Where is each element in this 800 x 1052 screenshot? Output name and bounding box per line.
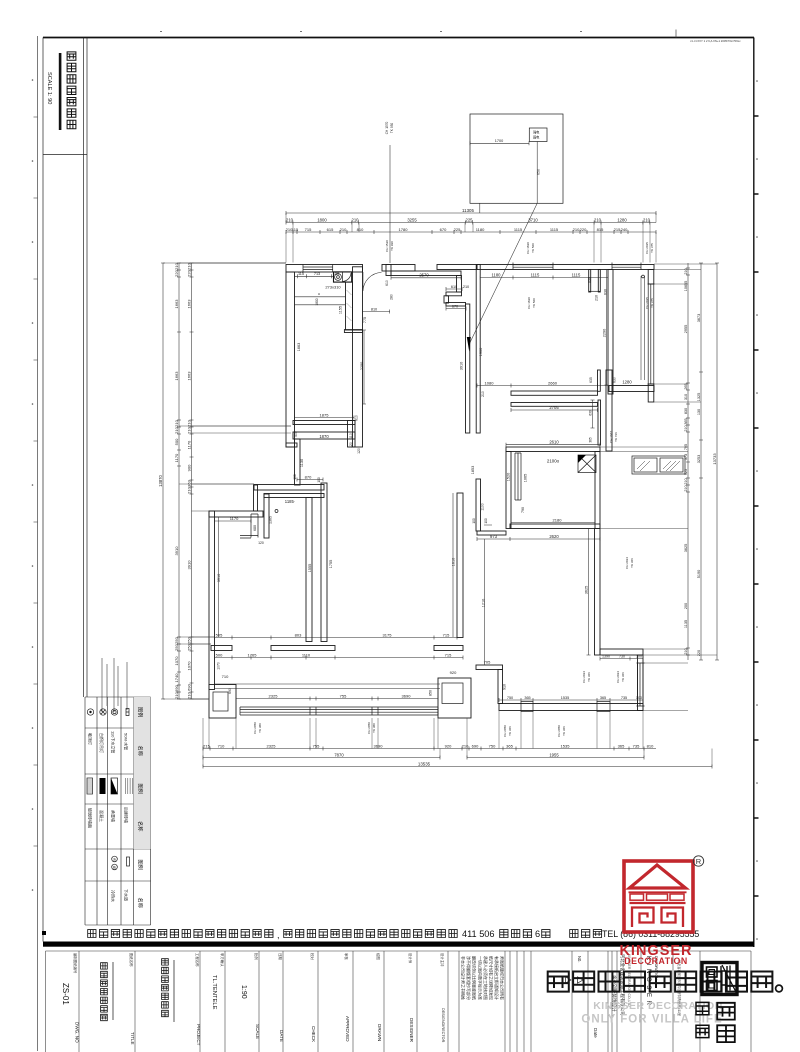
svg-text:下水道: 下水道 [124,889,130,901]
svg-text:TK 366: TK 366 [621,672,625,682]
svg-text:1080: 1080 [485,380,495,385]
svg-text:TK 366: TK 366 [587,672,591,682]
svg-text:有承接纸启立即通知设计: 有承接纸启立即通知设计 [494,956,500,1000]
svg-text:210: 210 [186,691,191,698]
svg-text:CH 2050: CH 2050 [253,722,257,734]
svg-text:365: 365 [618,743,625,748]
svg-text:图纸名称: 图纸名称 [129,953,134,967]
svg-text:CH 1820: CH 1820 [527,297,531,309]
svg-text:3910: 3910 [217,574,221,582]
svg-text:210: 210 [286,217,294,222]
svg-text:1100: 1100 [481,503,485,510]
svg-text:210: 210 [174,262,179,269]
svg-text:弱电: 弱电 [533,135,540,140]
svg-text:APPROVED: APPROVED [345,1016,350,1042]
svg-text:翻改切勿以比例量度图纸: 翻改切勿以比例量度图纸 [472,956,478,1000]
svg-text:TK 930: TK 930 [390,241,394,251]
svg-text:3253: 3253 [697,455,701,463]
svg-text:TK 375: TK 375 [650,298,654,308]
svg-text:ZS-01: ZS-01 [61,983,70,1005]
svg-text:1:90: 1:90 [240,985,247,999]
svg-text:735: 735 [621,696,627,700]
svg-text:1663: 1663 [297,343,301,351]
svg-text:850: 850 [429,690,433,696]
svg-text:DRAWN: DRAWN [377,1024,382,1041]
svg-text:1875: 1875 [320,412,330,417]
svg-text:图例: 图例 [137,860,145,870]
svg-text:图例: 图例 [137,707,145,717]
svg-text:1853: 1853 [471,466,475,474]
svg-text:TITLE: TITLE [130,1032,135,1045]
svg-text:TK 930: TK 930 [390,123,394,134]
svg-text:500: 500 [174,438,179,445]
svg-text:CH 2025: CH 2025 [645,242,649,254]
svg-text:150: 150 [333,272,339,276]
svg-text:100: 100 [317,477,321,483]
svg-text:CH 1667: CH 1667 [609,431,613,443]
svg-text:1780: 1780 [399,227,409,232]
svg-text:混凝土: 混凝土 [99,810,105,822]
svg-text:803: 803 [295,632,302,637]
svg-text:1130: 1130 [300,459,304,467]
svg-text:设计主持: 设计主持 [440,953,445,967]
svg-text:1325: 1325 [697,393,701,401]
svg-text:690: 690 [174,684,179,691]
svg-text:1520: 1520 [507,473,511,481]
svg-text:N0.: N0. [577,956,582,963]
svg-text:1663: 1663 [174,299,179,309]
svg-text:220: 220 [580,227,587,232]
svg-text:755: 755 [340,693,347,698]
svg-text:1070: 1070 [217,662,221,670]
svg-text:3625: 3625 [684,544,688,552]
svg-text:DATE: DATE [279,1030,284,1042]
svg-text:210: 210 [595,295,599,301]
svg-text:CH 2024: CH 2024 [625,557,629,569]
svg-text:2610: 2610 [549,440,559,445]
svg-text:750: 750 [507,696,513,700]
svg-text:审核: 审核 [344,953,349,960]
svg-text:13535: 13535 [418,761,431,766]
svg-text:13870: 13870 [158,475,163,487]
svg-text:10655: 10655 [684,281,688,292]
svg-text:200: 200 [684,603,688,609]
svg-text:1280: 1280 [617,217,627,222]
svg-text:3673: 3673 [697,314,701,322]
svg-text:610: 610 [385,280,389,286]
svg-text:设计师: 设计师 [408,953,413,964]
svg-text:630: 630 [588,410,592,416]
svg-text:713: 713 [314,272,320,276]
svg-text:310: 310 [684,394,688,400]
svg-text:1663: 1663 [186,299,191,309]
svg-text:210: 210 [643,217,651,222]
svg-text:编制图纸编号: 编制图纸编号 [73,953,78,974]
svg-text:715: 715 [443,632,450,637]
svg-text:1955: 1955 [549,752,559,757]
svg-text:绘图: 绘图 [376,953,381,960]
svg-text:Date: Date [593,1028,598,1038]
svg-text:1180: 1180 [476,227,485,232]
svg-text:师图纸版权归本公司所有: 师图纸版权归本公司所有 [500,956,506,1000]
svg-text:130: 130 [697,409,701,415]
svg-text:2180: 2180 [553,517,563,522]
svg-text:比例: 比例 [254,953,259,960]
svg-text:210: 210 [684,478,688,484]
svg-text:1185·: 1185· [285,499,295,504]
svg-text:校对: 校对 [310,953,315,960]
svg-text:1170: 1170 [174,453,179,462]
svg-text:265: 265 [684,383,688,389]
svg-text:1390: 1390 [602,654,610,658]
svg-text:210: 210 [684,648,688,654]
svg-text:365: 365 [684,418,688,424]
svg-text:非本公司设计师之书稿姓: 非本公司设计师之书稿姓 [461,956,467,1000]
svg-text:363: 363 [186,479,191,486]
svg-text:2570: 2570 [419,273,429,278]
svg-text:R: R [696,857,702,866]
svg-text:120: 120 [349,442,353,448]
svg-text:635: 635 [589,377,593,383]
svg-text:615: 615 [327,227,334,232]
svg-text:100: 100 [484,518,488,524]
svg-text:505: 505 [216,632,223,637]
svg-text:1210: 1210 [482,599,486,607]
svg-text:775: 775 [363,317,367,323]
svg-text:220: 220 [186,269,191,276]
svg-text:810: 810 [371,307,377,311]
svg-text:CHECK: CHECK [311,1026,316,1043]
svg-text:TK 375: TK 375 [650,243,654,253]
svg-text:1535: 1535 [561,696,569,700]
svg-text:3910: 3910 [174,546,179,556]
svg-text:6: 6 [535,929,540,939]
svg-text:110: 110 [349,433,353,439]
svg-text:610: 610 [451,285,457,289]
svg-text:7870: 7870 [334,752,344,757]
svg-text:一切以图内数字标示为准: 一切以图内数字标示为准 [477,956,483,1000]
svg-text:2325: 2325 [269,693,279,698]
svg-text:250: 250 [186,643,191,650]
svg-text:,: , [277,930,280,940]
svg-text:210: 210 [594,217,602,222]
svg-text:810: 810 [647,743,654,748]
svg-text:790: 790 [521,507,525,513]
svg-text:690: 690 [186,683,191,690]
svg-text:CH 2050: CH 2050 [557,725,561,737]
svg-text:630: 630 [604,289,608,295]
svg-text:1115: 1115 [531,272,540,277]
svg-text:630: 630 [613,377,617,383]
svg-text:1755: 1755 [329,560,333,568]
svg-text:215: 215 [203,743,210,748]
svg-text:870: 870 [305,474,312,479]
svg-text:500: 500 [216,652,223,657]
svg-text:670: 670 [452,304,458,308]
svg-text:610: 610 [355,415,359,421]
svg-text:273x310: 273x310 [325,285,341,290]
svg-text:210: 210 [684,485,688,491]
svg-text:TK 366: TK 366 [562,726,566,736]
svg-text:210: 210 [174,419,179,426]
svg-text:365: 365 [506,743,513,748]
svg-text:670: 670 [440,227,447,232]
svg-text:甲方确认: 甲方确认 [220,953,225,967]
svg-text:DWG. NO: DWG. NO [75,1022,80,1043]
svg-text:630: 630 [588,277,592,283]
svg-text:1365: 1365 [269,516,273,524]
svg-text:1535: 1535 [561,743,571,748]
svg-text:100: 100 [636,696,642,700]
svg-text:250: 250 [186,636,191,643]
svg-text:后建砖墙: 后建砖墙 [124,807,130,823]
svg-text:TK 366: TK 366 [630,558,634,568]
svg-text:冷热水: 冷热水 [111,890,117,902]
svg-text:120: 120 [258,541,264,545]
svg-text:210: 210 [481,391,485,397]
svg-text:50M·水管: 50M·水管 [124,733,130,750]
svg-text:2660: 2660 [548,380,558,385]
svg-text:2325: 2325 [267,743,277,748]
svg-text:1900: 1900 [479,348,483,356]
svg-text:110下水立管: 110下水立管 [111,731,117,753]
svg-text:240: 240 [621,227,628,232]
svg-text:白炽灯吊灯: 白炽灯吊灯 [99,733,105,753]
svg-text:3625: 3625 [584,586,588,594]
svg-text:1170: 1170 [186,440,191,449]
svg-text:210: 210 [186,426,191,433]
svg-text:920: 920 [445,743,452,748]
svg-text:365: 365 [589,437,593,443]
svg-text:2705: 2705 [549,405,559,410]
svg-text:PROJECT: PROJECT [196,1024,201,1046]
svg-text:210: 210 [684,425,688,431]
svg-text:1115: 1115 [514,227,523,232]
svg-text:690: 690 [228,688,232,694]
svg-text:1870: 1870 [319,434,329,439]
svg-text:100: 100 [472,518,476,524]
svg-text:750: 750 [489,743,496,748]
svg-text:755: 755 [313,743,320,748]
svg-text:411 506: 411 506 [462,929,495,939]
svg-text:涉不得翻版套相抄写部分: 涉不得翻版套相抄写部分 [466,956,472,1000]
svg-text:1800: 1800 [317,217,327,222]
svg-text:玻璃砖墙面: 玻璃砖墙面 [88,808,94,828]
svg-text:TK 560: TK 560 [531,243,535,253]
svg-text:TK 380: TK 380 [258,723,262,733]
svg-text:3690: 3690 [402,693,412,698]
svg-text:3175: 3175 [383,632,393,637]
svg-text:1663: 1663 [174,371,179,381]
svg-text:900: 900 [186,464,191,471]
svg-text:1740: 1740 [174,673,179,683]
svg-text:图例: 图例 [137,784,145,794]
svg-text:1555: 1555 [308,564,312,572]
svg-text:1115: 1115 [550,227,559,232]
svg-text:830: 830 [684,408,688,414]
svg-text:100: 100 [293,474,297,480]
svg-text:强电: 强电 [533,130,540,135]
svg-text:910: 910 [503,684,507,690]
svg-text:1070: 1070 [186,661,191,671]
svg-text:210: 210 [186,419,191,426]
svg-text:5190: 5190 [697,570,701,578]
svg-text:CH 1820: CH 1820 [526,242,530,254]
svg-text:920: 920 [450,670,457,675]
svg-text:CH 2050: CH 2050 [503,725,507,737]
svg-text:115: 115 [298,272,304,276]
svg-text:210: 210 [186,262,191,269]
svg-text:吸顶灯: 吸顶灯 [88,733,94,745]
svg-text:730: 730 [619,654,625,658]
svg-text:3910: 3910 [460,362,464,370]
svg-text:210: 210 [340,227,347,232]
svg-text:1610: 1610 [452,558,456,566]
svg-text:SCALE: SCALE [255,1024,260,1039]
svg-text:名称: 名称 [137,898,145,908]
svg-text:1180: 1180 [491,272,501,277]
svg-text:名称: 名称 [137,821,145,831]
svg-text:1070: 1070 [174,656,179,666]
svg-text:690: 690 [472,743,479,748]
svg-text:365: 365 [524,696,530,700]
svg-text:1155: 1155 [339,306,343,314]
svg-text:250: 250 [174,643,179,650]
svg-text:TK 560: TK 560 [532,298,536,308]
svg-text:650: 650 [537,169,541,175]
svg-text:CH 2050: CH 2050 [367,722,371,734]
svg-text:250: 250 [174,636,179,643]
svg-text:2290: 2290 [360,362,364,370]
svg-text:CH 1570: CH 1570 [385,121,389,134]
svg-text:TK 380: TK 380 [372,723,376,733]
svg-text:1170: 1170 [230,516,239,521]
svg-text:11305: 11305 [462,208,474,213]
svg-text:冷: 冷 [113,857,117,862]
svg-text:1110: 1110 [302,652,311,657]
svg-text:100: 100 [636,654,642,658]
svg-text:CH 2024: CH 2024 [582,671,586,683]
svg-text:1765: 1765 [248,652,258,657]
svg-text:3690: 3690 [374,743,384,748]
svg-text:TL.TENTELE: TL.TENTELE [211,975,217,1010]
svg-text:715: 715 [445,652,452,657]
svg-text:1135: 1135 [684,620,688,628]
svg-text:3255: 3255 [407,217,417,222]
svg-text:225: 225 [454,227,461,232]
svg-text:u: u [318,292,320,296]
svg-text:SCALE 1: 90: SCALE 1: 90 [46,72,52,104]
svg-text:210: 210 [352,217,360,222]
svg-text:3910: 3910 [186,560,191,570]
svg-text:CH 2024: CH 2024 [616,671,620,683]
svg-text:1065: 1065 [524,474,528,482]
svg-text:工程名称: 工程名称 [195,953,200,967]
svg-text:710: 710 [222,674,229,679]
svg-text:热: 热 [113,865,117,870]
svg-text:2100o: 2100o [547,459,560,464]
svg-text:CH 2025: CH 2025 [645,297,649,309]
svg-text:日期: 日期 [278,953,283,960]
svg-text:2290: 2290 [602,329,606,337]
svg-text:500: 500 [294,431,298,437]
svg-text:承重墙: 承重墙 [111,810,117,822]
svg-text:210: 210 [462,743,469,748]
svg-text:2620: 2620 [549,534,559,539]
svg-text:名称: 名称 [137,746,145,756]
svg-text:210: 210 [463,285,469,289]
svg-text:1700: 1700 [495,139,503,143]
svg-text:TK 726: TK 726 [614,432,618,442]
svg-text:210: 210 [186,486,191,493]
svg-text:373: 373 [684,454,688,460]
svg-text:DESIGNER: DESIGNER [409,1018,414,1043]
svg-text:DESIGNDIRECTOR: DESIGNDIRECTOR [441,1008,445,1043]
svg-text:815: 815 [597,227,604,232]
svg-text:220: 220 [174,269,179,276]
svg-text:1663: 1663 [186,371,191,381]
svg-text:TK 366: TK 366 [508,726,512,736]
svg-text:210: 210 [174,426,179,433]
svg-text:365: 365 [600,696,606,700]
svg-text:1800: 1800 [315,298,319,305]
svg-text:973: 973 [490,534,498,539]
svg-text:1280: 1280 [622,380,632,385]
svg-text:810: 810 [357,227,364,232]
svg-text:13733: 13733 [712,453,717,465]
svg-text:CH 1520: CH 1520 [385,240,389,252]
svg-text:210: 210 [174,691,179,698]
svg-text:680: 680 [253,525,257,531]
svg-text:280: 280 [390,294,394,300]
svg-text:1115: 1115 [572,272,581,277]
svg-text:DECORATION: DECORATION [624,956,687,966]
svg-text:715: 715 [305,227,312,232]
svg-text:735: 735 [633,743,640,748]
svg-text:120: 120 [357,448,361,454]
svg-text:710: 710 [218,743,225,748]
svg-text:225: 225 [466,217,474,222]
svg-text:2955: 2955 [684,325,688,333]
svg-text:承建人必须在工地核对图: 承建人必须在工地核对图 [483,956,489,1000]
svg-text:J.L.N.XXY 1 2 6,/LXN+1 2005/70: J.L.N.XXY 1 2 6,/LXN+1 2005/70x/706xx [690,39,741,43]
svg-text:3710: 3710 [528,217,538,222]
svg-text:纸尺寸如有之误降如发现: 纸尺寸如有之误降如发现 [489,956,495,1000]
